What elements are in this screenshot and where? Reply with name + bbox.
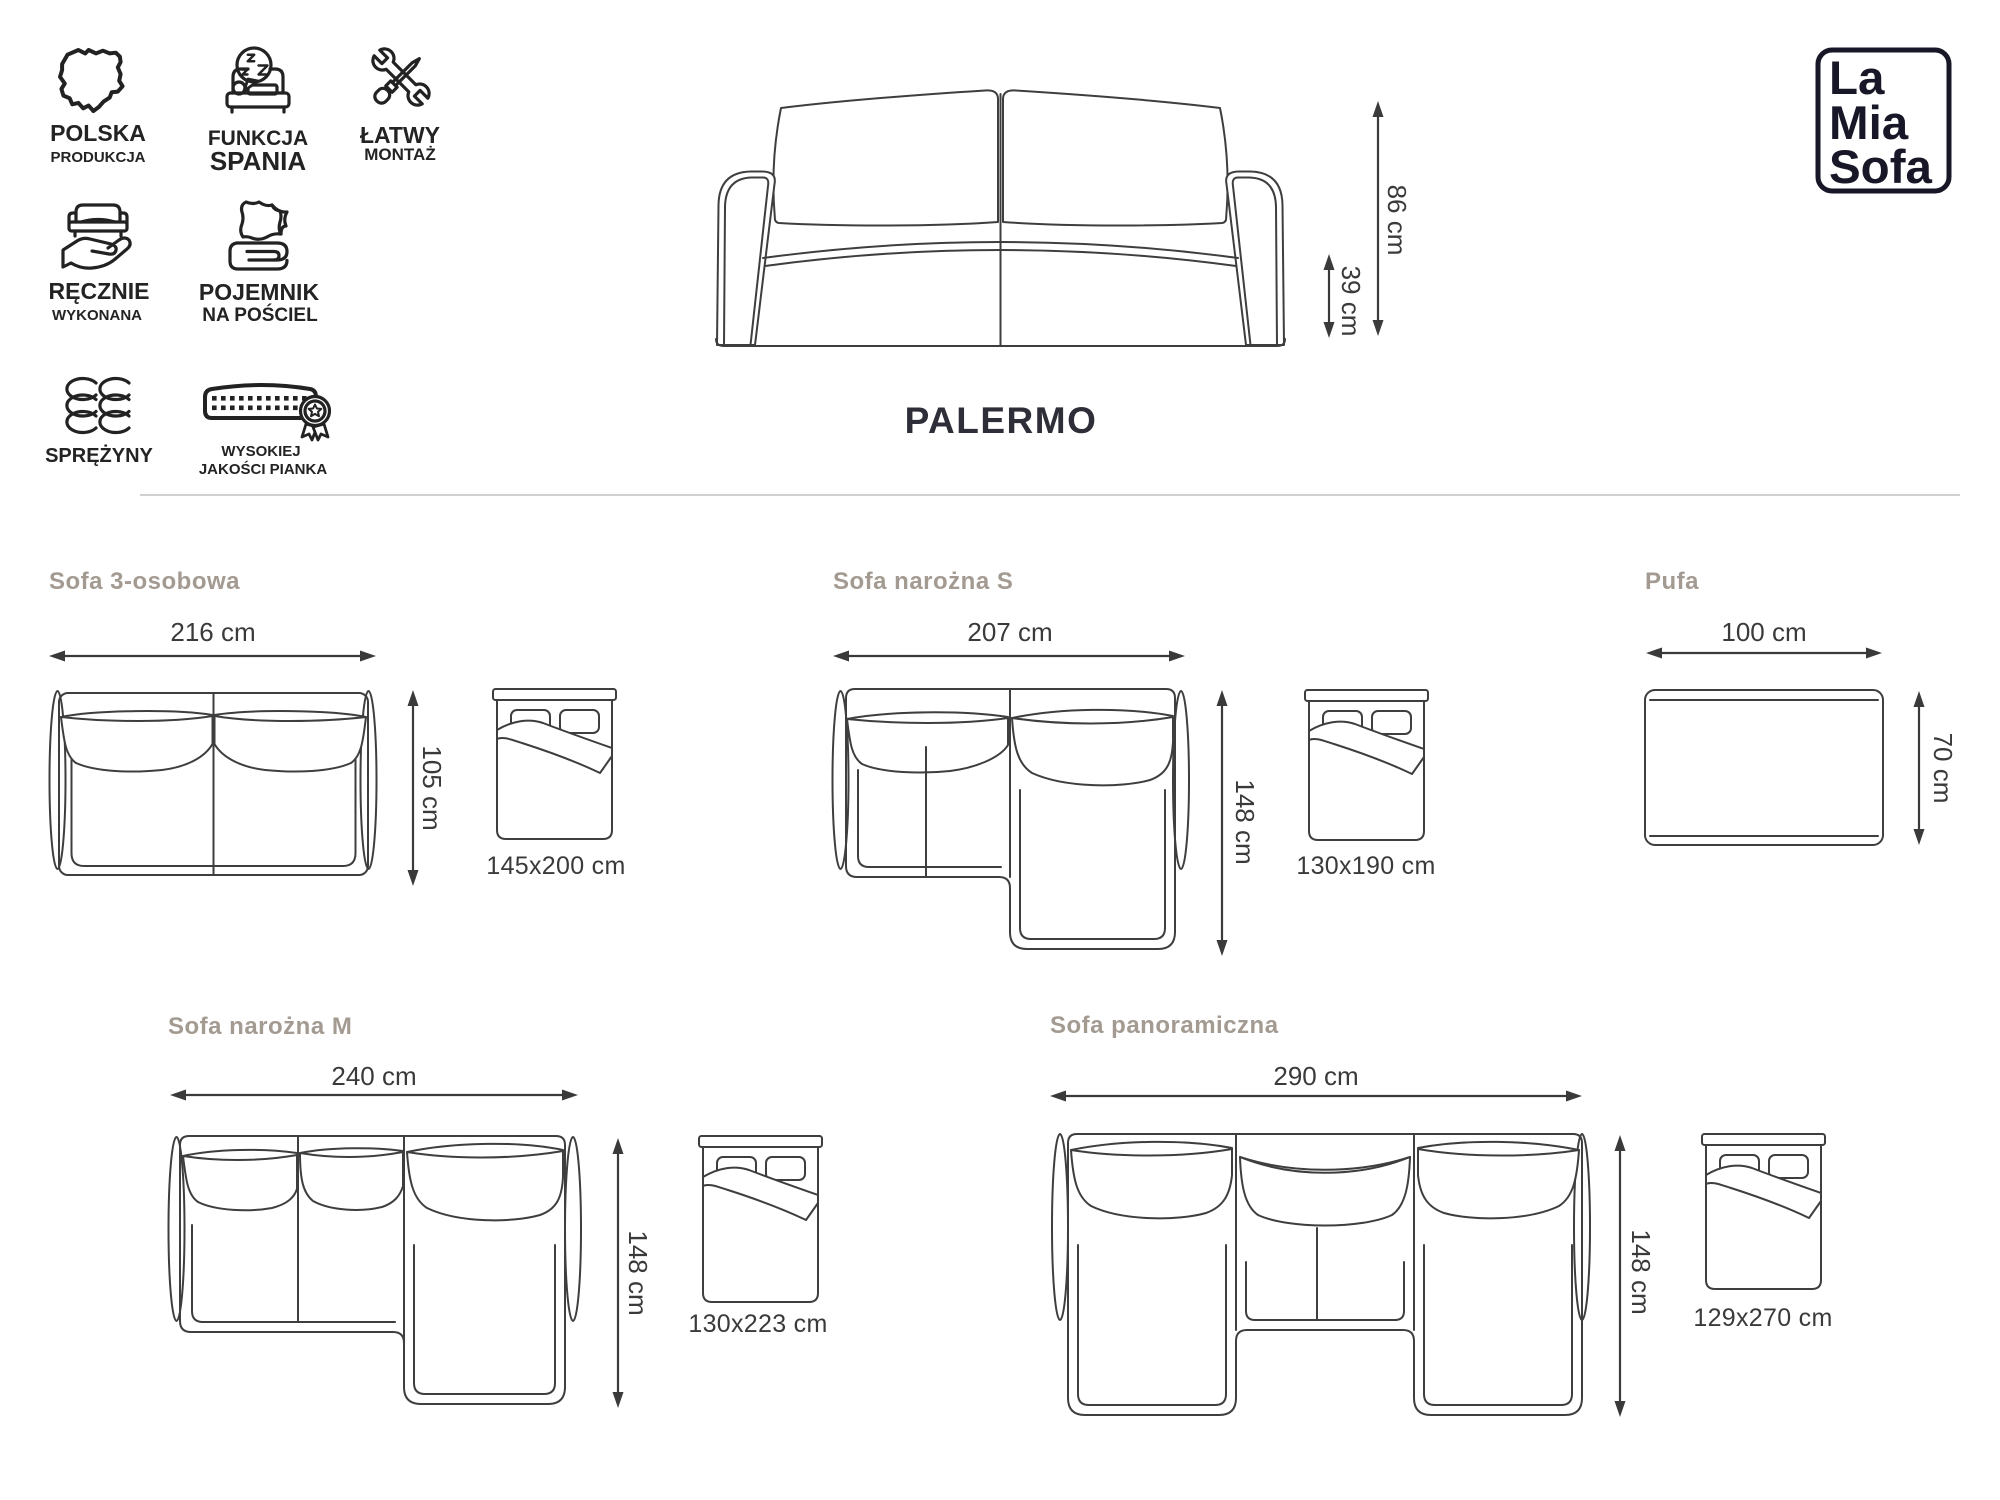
svg-text:148 cm: 148 cm: [623, 1230, 653, 1315]
svg-text:MONTAŻ: MONTAŻ: [364, 145, 435, 164]
svg-text:216 cm: 216 cm: [170, 617, 255, 647]
svg-text:PALERMO: PALERMO: [905, 400, 1098, 441]
svg-text:145x200 cm: 145x200 cm: [486, 852, 625, 880]
svg-text:148 cm: 148 cm: [1230, 779, 1260, 864]
svg-text:207 cm: 207 cm: [967, 617, 1052, 647]
svg-text:86 cm: 86 cm: [1382, 185, 1412, 256]
svg-text:70 cm: 70 cm: [1928, 733, 1958, 804]
svg-text:Sofa 3-osobowa: Sofa 3-osobowa: [49, 568, 240, 595]
svg-text:130x190 cm: 130x190 cm: [1296, 852, 1435, 880]
svg-text:WYKONANA: WYKONANA: [52, 307, 142, 324]
svg-text:Pufa: Pufa: [1645, 568, 1699, 595]
svg-text:PRODUKCJA: PRODUKCJA: [50, 149, 145, 166]
svg-text:290 cm: 290 cm: [1273, 1061, 1358, 1091]
svg-text:130x223 cm: 130x223 cm: [688, 1310, 827, 1338]
svg-text:39 cm: 39 cm: [1336, 266, 1366, 337]
svg-text:148 cm: 148 cm: [1626, 1229, 1656, 1314]
svg-text:WYSOKIEJ: WYSOKIEJ: [221, 443, 300, 460]
svg-text:Sofa panoramiczna: Sofa panoramiczna: [1050, 1012, 1279, 1039]
svg-text:POJEMNIK: POJEMNIK: [199, 279, 320, 305]
svg-text:NA POŚCIEL: NA POŚCIEL: [202, 304, 318, 326]
svg-text:240 cm: 240 cm: [331, 1061, 416, 1091]
svg-text:Sofa narożna M: Sofa narożna M: [168, 1013, 352, 1040]
svg-text:POLSKA: POLSKA: [50, 120, 146, 146]
svg-text:SPRĘŻYNY: SPRĘŻYNY: [45, 444, 153, 467]
svg-text:100 cm: 100 cm: [1721, 617, 1806, 647]
svg-text:129x270 cm: 129x270 cm: [1693, 1304, 1832, 1332]
svg-text:JAKOŚCI PIANKA: JAKOŚCI PIANKA: [199, 460, 328, 478]
svg-text:105 cm: 105 cm: [417, 745, 447, 830]
svg-text:RĘCZNIE: RĘCZNIE: [49, 278, 150, 304]
svg-text:SPANIA: SPANIA: [210, 146, 307, 176]
svg-text:Sofa: Sofa: [1829, 141, 1933, 194]
svg-text:Sofa narożna S: Sofa narożna S: [833, 568, 1013, 595]
